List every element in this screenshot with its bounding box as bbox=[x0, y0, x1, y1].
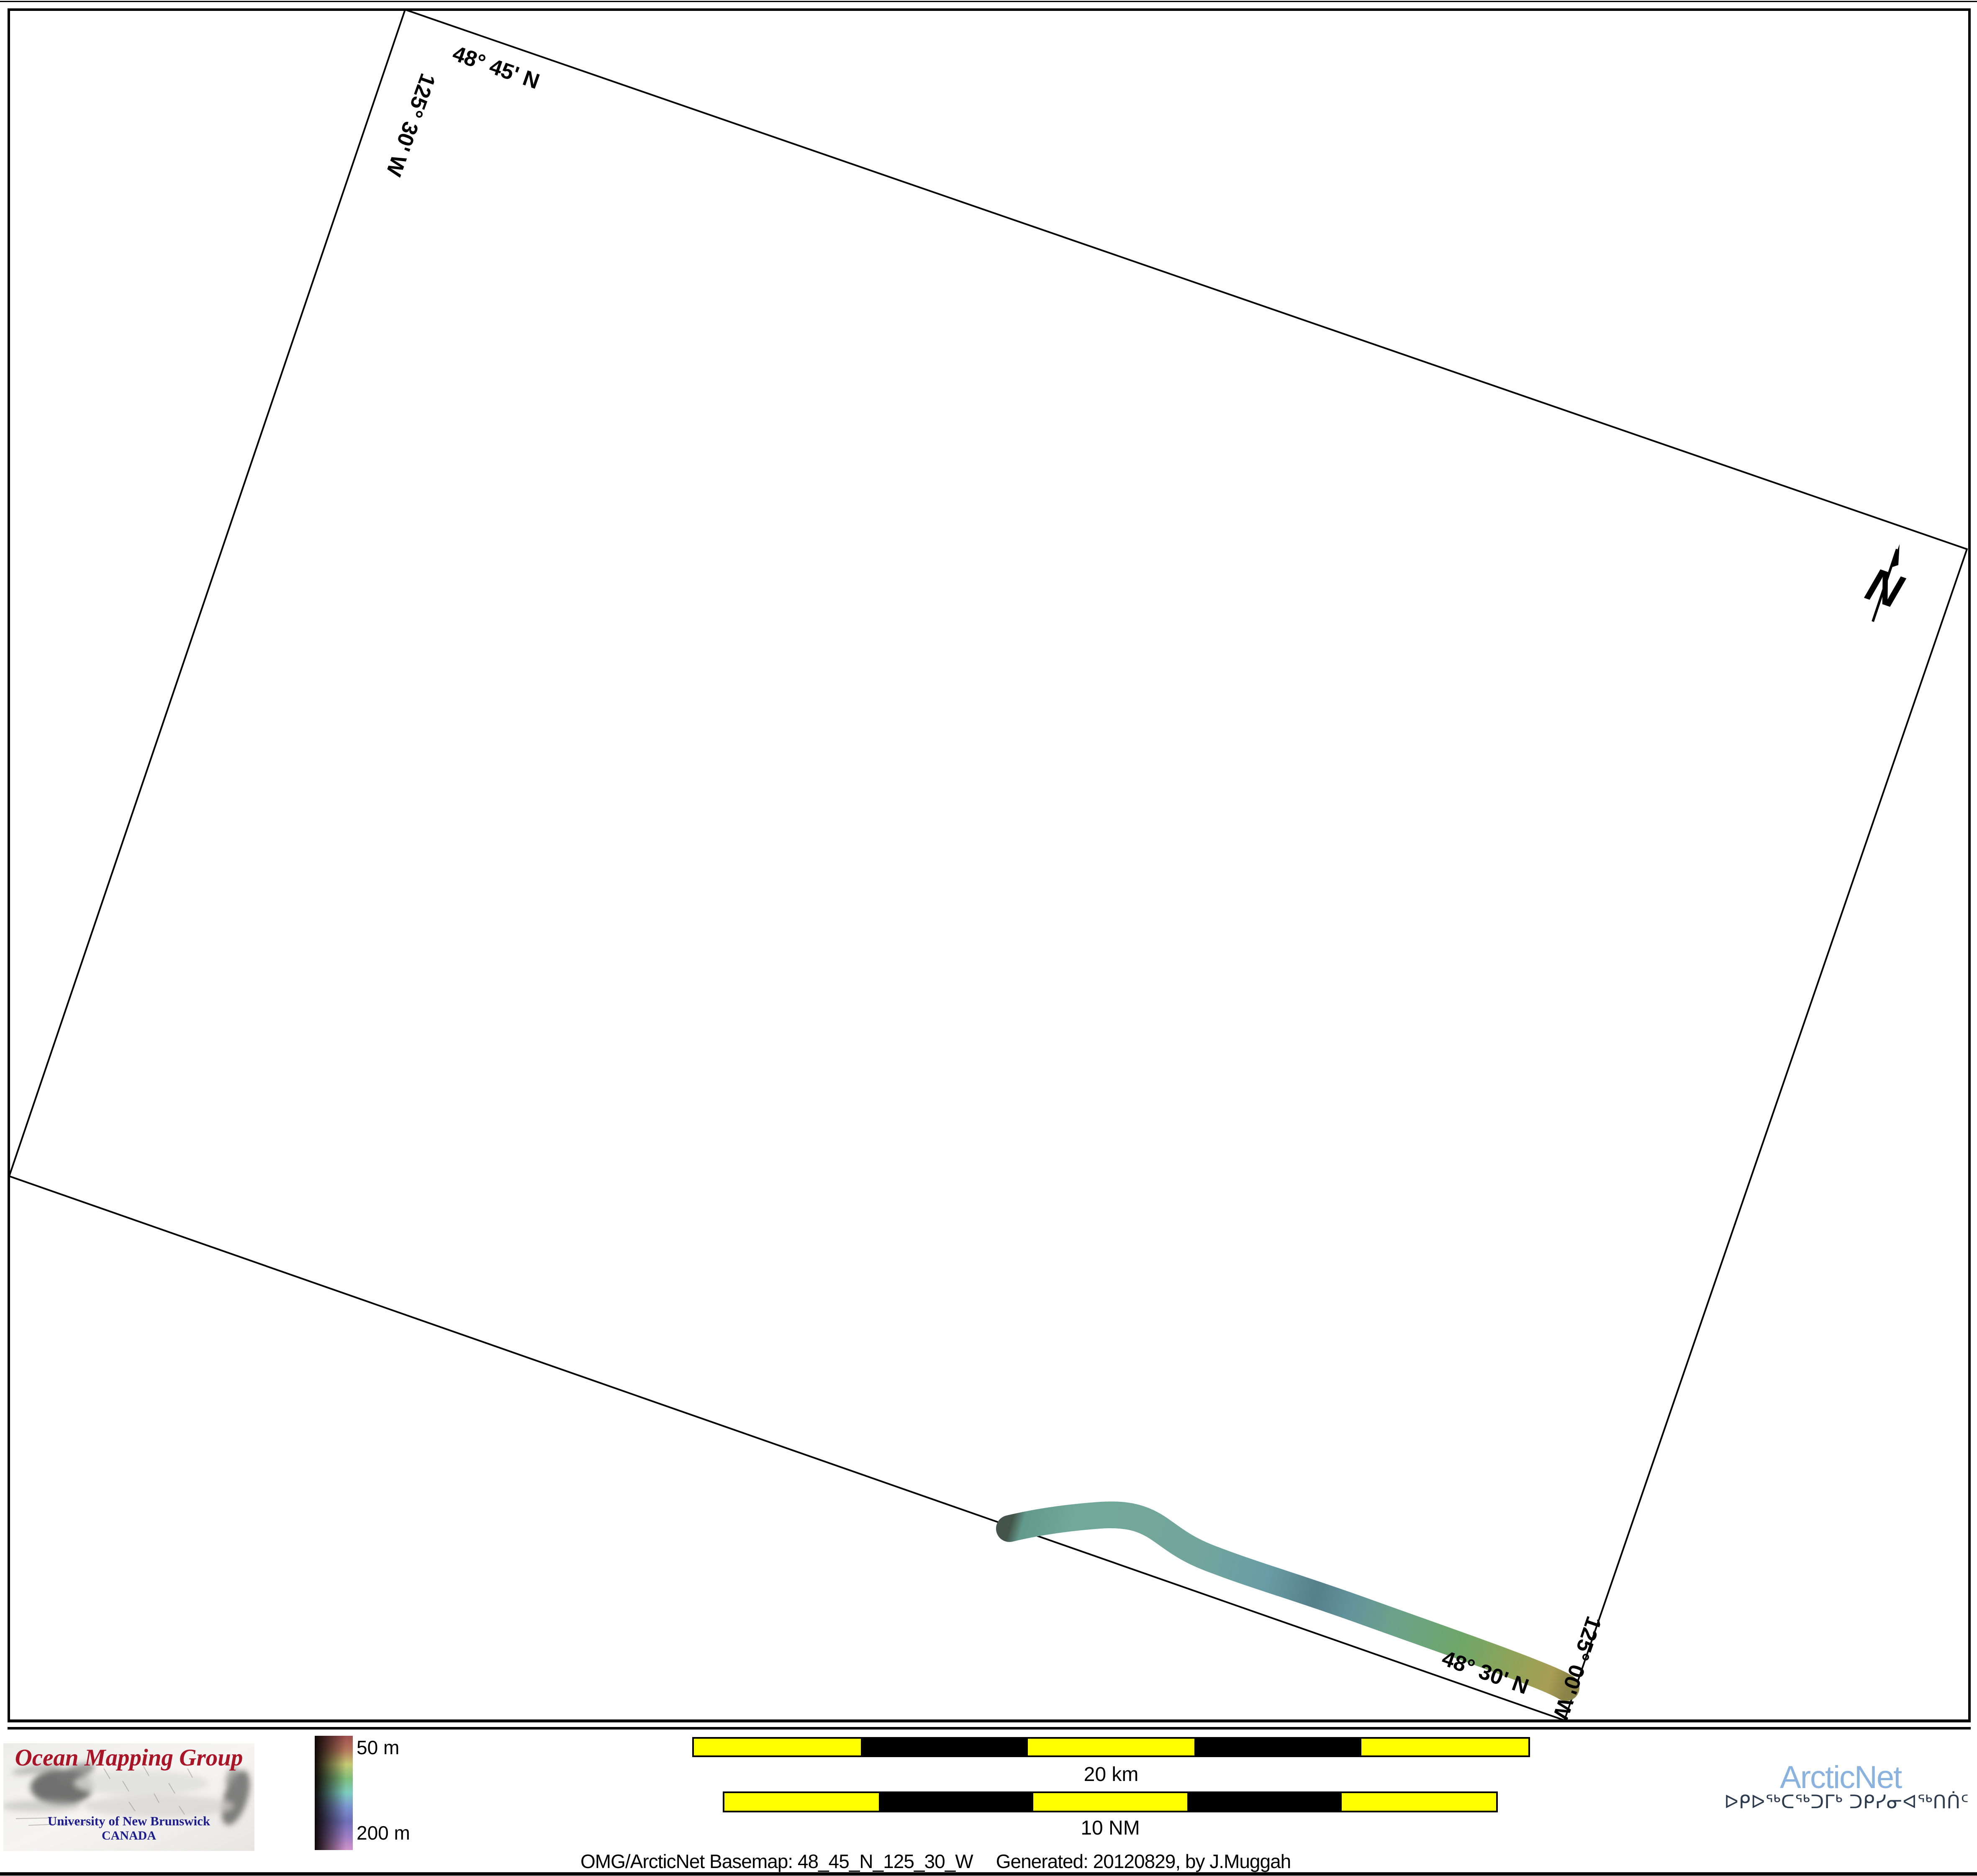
scalebar-segment bbox=[1187, 1793, 1342, 1811]
image-bottom-border bbox=[0, 1872, 1977, 1876]
label-left-longitude: 125° 30' W bbox=[381, 70, 440, 180]
caption-generated: Generated: 20120829, by J.Muggah bbox=[996, 1850, 1291, 1872]
scalebar-segment bbox=[879, 1793, 1033, 1811]
scalebar-segment bbox=[1342, 1793, 1496, 1811]
arcticnet-syllabics: ᐅᑭᐅᖅᑕᖅᑐᒥᒃ ᑐᑭᓯᓂᐊᖅᑎᑏᑦ bbox=[1724, 1791, 1969, 1813]
label-right-longitude: 125° 00' W bbox=[1548, 1613, 1606, 1723]
map-area: 48° 45' N 125° 30' W 48° 30' N 125° 00' … bbox=[0, 0, 1977, 1876]
basemap-page: 48° 45' N 125° 30' W 48° 30' N 125° 00' … bbox=[0, 0, 1977, 1876]
scalebar-kilometers bbox=[692, 1737, 1530, 1757]
arcticnet-logo: ArcticNet bbox=[1780, 1759, 1901, 1796]
north-arrow: N bbox=[1860, 544, 1910, 622]
depth-color-legend bbox=[315, 1736, 353, 1850]
panel-separator-line bbox=[8, 1727, 1971, 1730]
scalebar-segment bbox=[724, 1793, 879, 1811]
depth-legend-top-label: 50 m bbox=[357, 1736, 399, 1759]
map-frame-top bbox=[8, 8, 1971, 11]
map-frame-left bbox=[8, 8, 10, 1722]
map-frame-bottom bbox=[8, 1719, 1971, 1722]
scalebar-nautical-miles bbox=[723, 1791, 1498, 1812]
omg-logo-title: Ocean Mapping Group bbox=[3, 1744, 254, 1771]
image-top-border bbox=[0, 1, 1977, 2]
omg-logo-country: CANADA bbox=[3, 1829, 254, 1843]
scalebar-nautical-miles-label: 10 NM bbox=[1027, 1817, 1194, 1840]
map-frame-right bbox=[1968, 8, 1971, 1722]
caption-basemap-id: OMG/ArcticNet Basemap: 48_45_N_125_30_W bbox=[580, 1850, 973, 1872]
scalebar-segment bbox=[1194, 1739, 1361, 1755]
omg-logo-subtitle: University of New Brunswick bbox=[3, 1814, 254, 1829]
scalebar-segment bbox=[694, 1739, 861, 1755]
omg-logo: Ocean Mapping Group University of New Br… bbox=[3, 1743, 254, 1851]
scalebar-segment bbox=[1361, 1739, 1528, 1755]
scalebar-kilometers-label: 20 km bbox=[1027, 1763, 1195, 1786]
scalebar-segment bbox=[861, 1739, 1028, 1755]
north-arrow-label: N bbox=[1860, 558, 1910, 618]
basemap-caption: OMG/ArcticNet Basemap: 48_45_N_125_30_WG… bbox=[580, 1850, 1314, 1873]
depth-legend-bottom-label: 200 m bbox=[357, 1822, 410, 1844]
scalebar-segment bbox=[1028, 1739, 1195, 1755]
map-sheet-boundary bbox=[9, 10, 1967, 1720]
label-top-latitude: 48° 45' N bbox=[449, 41, 542, 94]
scalebar-segment bbox=[1033, 1793, 1188, 1811]
